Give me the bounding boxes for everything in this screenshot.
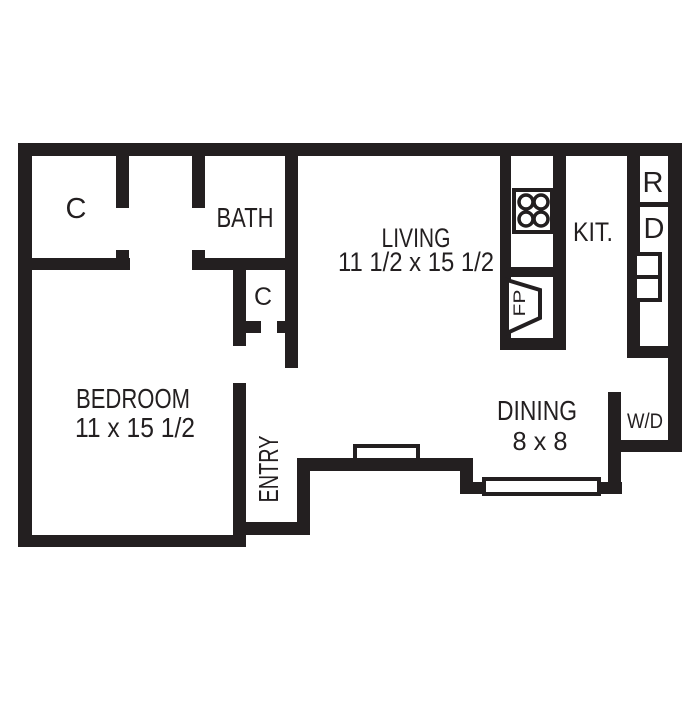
wall-closet-tl-partition-lower (116, 250, 129, 270)
refrigerator-label: R (643, 167, 664, 199)
closet-top-left-label: C (66, 193, 87, 225)
living-dimensions: 11 1/2 x 15 1/2 (338, 247, 494, 277)
stove-burner-icon (534, 212, 548, 226)
wall-kitchen-column-right (553, 156, 566, 350)
fireplace-label: FP (510, 290, 529, 317)
wall-closet-tl-bottom (18, 258, 130, 270)
dining-dimensions: 8 x 8 (513, 426, 568, 456)
washer-dryer-label: W/D (627, 410, 663, 433)
bedroom-dimensions: 11 x 15 1/2 (75, 412, 195, 443)
wall-closet-tl-partition-upper (116, 156, 129, 208)
stove-burner-icon (519, 195, 533, 209)
wall-counter-cap (627, 346, 682, 358)
wall-wd-bottom (608, 440, 682, 452)
divider-refrigerator (640, 202, 668, 207)
wall-closet-hall-door-stub-left (246, 321, 261, 333)
dining-label: DINING (497, 395, 577, 426)
window-dining (484, 479, 599, 494)
dishwasher-label: D (644, 213, 665, 245)
bath-label: BATH (217, 202, 274, 233)
entry-label: ENTRY (253, 435, 284, 502)
wall-exterior-top (18, 143, 682, 156)
wall-closet-hall-left (233, 268, 246, 346)
bedroom-label: BEDROOM (76, 383, 190, 414)
wall-exterior-right (668, 143, 682, 452)
wall-bath-left-upper (192, 156, 205, 208)
stove-burner-icon (519, 212, 533, 226)
divider-stove-counter (511, 267, 553, 277)
floor-plan-page: C BATH LIVING 11 1/2 x 15 1/2 KIT. R D C… (0, 0, 697, 697)
wall-closet-hall-door-stub-right (277, 321, 285, 333)
window-living (355, 446, 418, 460)
kitchen-label: KIT. (573, 217, 613, 247)
floor-plan: C BATH LIVING 11 1/2 x 15 1/2 KIT. R D C… (0, 0, 697, 697)
wall-bath-right (285, 156, 298, 368)
closet-hall-label: C (254, 283, 272, 311)
wall-kitchen-column-cap (500, 338, 566, 350)
wall-bedroom-bottom (18, 535, 246, 547)
stove-burner-icon (534, 195, 548, 209)
wall-exterior-left (18, 143, 32, 547)
